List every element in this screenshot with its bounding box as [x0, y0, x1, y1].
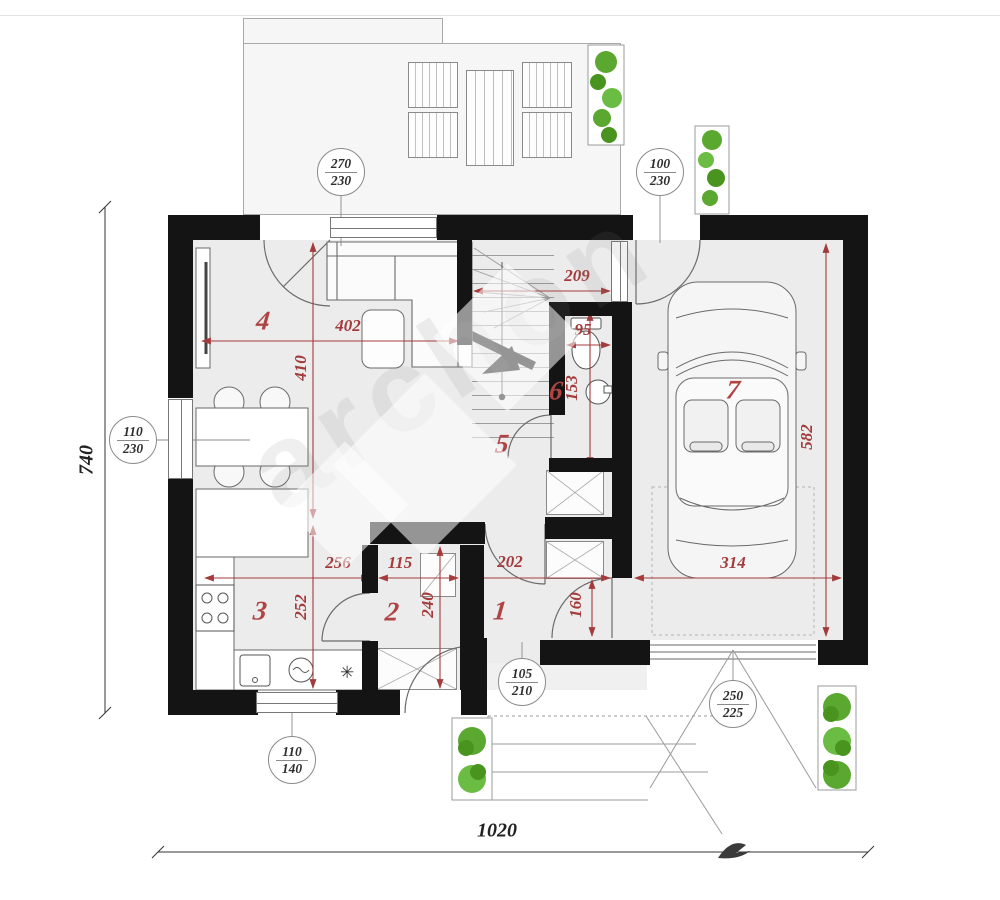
kitchen-window [256, 692, 338, 713]
wall-garage-left [612, 302, 632, 578]
room-label-7: 7 [725, 375, 742, 406]
tag-terrace-window: 270 230 [317, 148, 365, 196]
dim-living-width: 402 [335, 316, 361, 336]
dim-garage-depth: 582 [797, 424, 817, 450]
room-label-4: 4 [255, 306, 272, 337]
dim-garage-passage: 160 [566, 592, 586, 618]
dim-kitchen-width: 256 [325, 553, 351, 573]
vestibule-glazing [611, 241, 628, 302]
dim-total-depth: 740 [76, 445, 99, 475]
terrace-window [330, 217, 437, 238]
wall-kitchen-pantry-lower [362, 641, 378, 690]
dim-wc-width: 95 [575, 320, 592, 340]
dim-garage-width: 314 [720, 553, 746, 573]
terrace-table [466, 70, 514, 166]
terrace-chair [408, 62, 458, 108]
wall-hall-south-west [370, 522, 485, 544]
dim-pantry-width: 115 [388, 553, 413, 573]
dining-window [168, 399, 193, 479]
tag-garage-gate: 250 225 [709, 680, 757, 728]
terrace-chair [522, 112, 572, 158]
tag-kitchen-window: 110 140 [268, 736, 316, 784]
dimension-ornament [718, 843, 750, 858]
dim-stair-hall-width: 209 [564, 266, 590, 286]
terrace-chair [522, 62, 572, 108]
page-top-rule [0, 15, 1000, 16]
wall-hall-south-east [545, 517, 612, 539]
terrace-step [243, 18, 443, 44]
dim-entry-hall-width: 202 [497, 552, 523, 572]
entry-closet [546, 541, 604, 579]
dim-living-depth: 410 [291, 355, 311, 381]
tag-garage-side-door: 100 230 [636, 148, 684, 196]
tag-dining-window: 110 230 [109, 416, 157, 464]
wall-bottom-center [336, 690, 400, 715]
wall-left-upper [168, 215, 193, 398]
terrace-chair [408, 112, 458, 158]
wall-garage-front-right [818, 640, 868, 665]
staircase [472, 242, 554, 440]
dim-wc-depth: 153 [562, 375, 582, 401]
pantry-shelf [420, 553, 456, 597]
wall-garage-front-left [540, 640, 650, 665]
wall-pantry-entry [460, 545, 484, 690]
wall-wc-top [549, 302, 612, 316]
dim-pantry-depth: 240 [418, 592, 438, 618]
wall-top-center [437, 215, 633, 240]
wall-stair [457, 240, 472, 345]
wall-right [843, 215, 868, 665]
dim-total-width: 1020 [477, 820, 517, 843]
entry-steps [488, 716, 733, 834]
wall-left-lower [168, 478, 193, 715]
floor-plan: ✳ [0, 0, 1000, 900]
tag-entry-door: 105 210 [498, 658, 546, 706]
room-label-2: 2 [384, 597, 401, 628]
wall-bottom-west [168, 690, 258, 715]
pantry-wardrobe [377, 648, 457, 690]
hall-closet [546, 470, 604, 515]
room-label-3: 3 [252, 596, 269, 627]
wall-kitchen-pantry-upper [362, 545, 378, 593]
dim-kitchen-depth: 252 [291, 594, 311, 620]
wall-top-west [168, 215, 260, 240]
